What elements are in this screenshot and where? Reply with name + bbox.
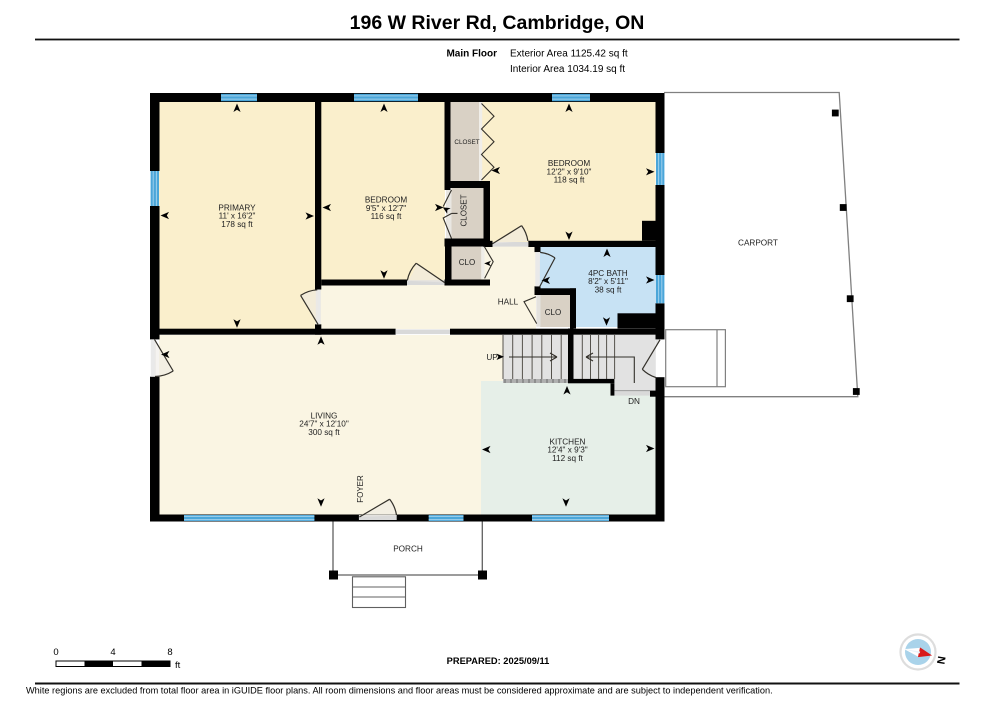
- svg-text:38 sq ft: 38 sq ft: [595, 285, 623, 294]
- svg-text:CLOSET: CLOSET: [454, 139, 479, 146]
- svg-text:112 sq ft: 112 sq ft: [552, 454, 584, 463]
- svg-text:300 sq ft: 300 sq ft: [308, 428, 340, 437]
- svg-text:White regions are excluded fro: White regions are excluded from total fl…: [26, 686, 773, 696]
- svg-text:HALL: HALL: [498, 298, 519, 307]
- svg-text:CLOSET: CLOSET: [460, 194, 469, 226]
- svg-text:UP: UP: [486, 353, 498, 362]
- svg-text:118 sq ft: 118 sq ft: [554, 176, 586, 185]
- svg-text:ft: ft: [175, 660, 181, 671]
- svg-text:Main Floor: Main Floor: [446, 49, 497, 60]
- svg-text:4: 4: [110, 647, 115, 658]
- svg-text:196 W River Rd, Cambridge, ON: 196 W River Rd, Cambridge, ON: [350, 12, 645, 34]
- svg-text:CLO: CLO: [545, 308, 561, 317]
- svg-text:Interior Area 1034.19 sq ft: Interior Area 1034.19 sq ft: [510, 64, 625, 75]
- svg-text:PORCH: PORCH: [393, 545, 423, 554]
- svg-text:8: 8: [167, 647, 172, 658]
- svg-text:CLO: CLO: [459, 258, 475, 267]
- svg-text:Exterior Area 1125.42 sq ft: Exterior Area 1125.42 sq ft: [510, 49, 628, 60]
- svg-text:FOYER: FOYER: [356, 475, 365, 503]
- svg-text:116 sq ft: 116 sq ft: [371, 212, 403, 221]
- svg-text:DN: DN: [628, 397, 640, 406]
- svg-text:CARPORT: CARPORT: [738, 239, 778, 248]
- svg-text:0: 0: [53, 647, 58, 658]
- svg-text:PREPARED: 2025/09/11: PREPARED: 2025/09/11: [447, 656, 550, 666]
- svg-text:178 sq ft: 178 sq ft: [221, 220, 253, 229]
